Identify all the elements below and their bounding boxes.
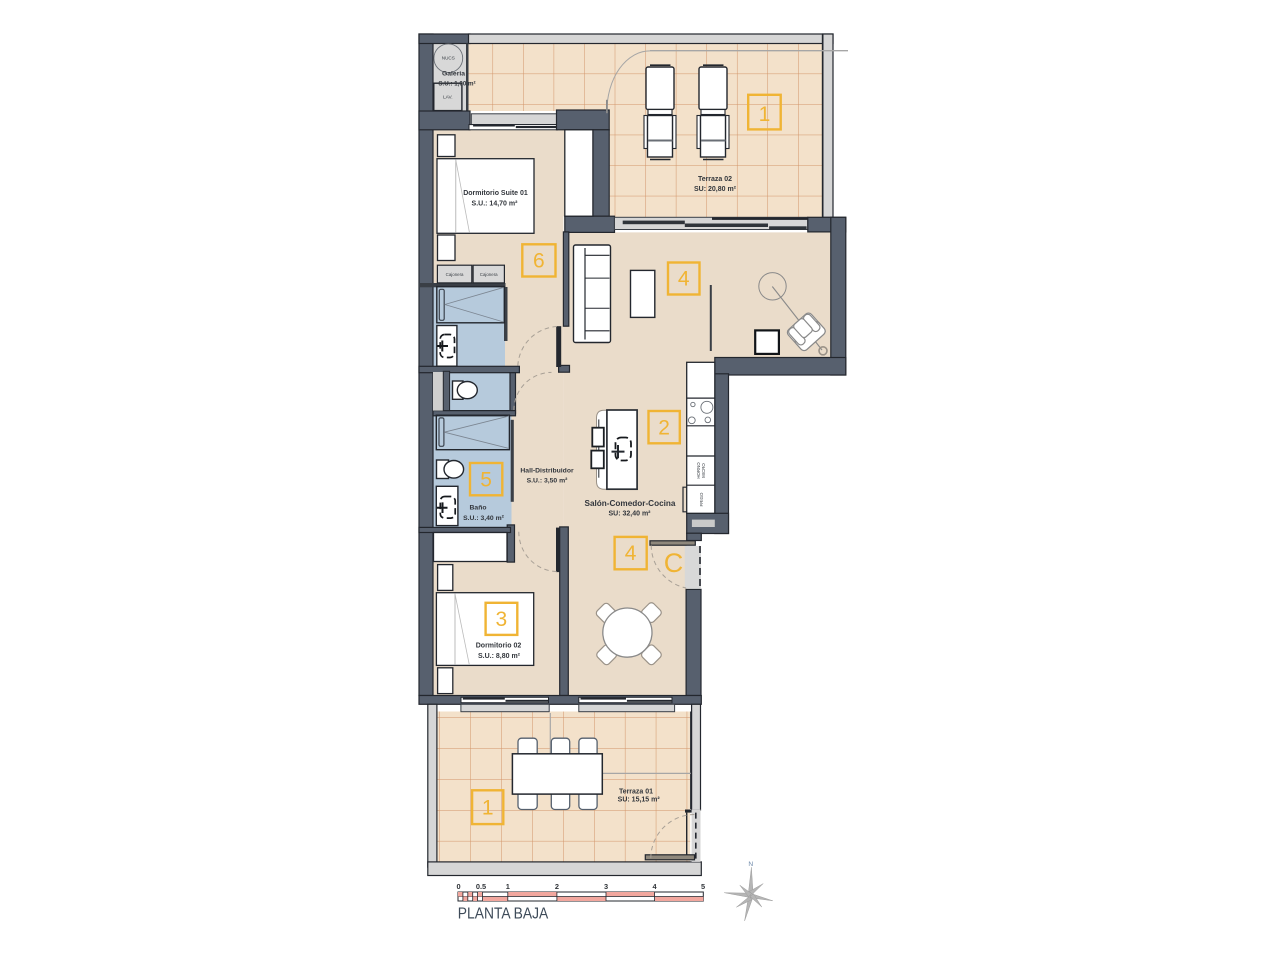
svg-text:Dormitorio Suite 01: Dormitorio Suite 01 (463, 190, 528, 197)
svg-text:3: 3 (496, 608, 508, 631)
svg-text:1: 1 (482, 797, 494, 820)
svg-text:Dormitorio 02: Dormitorio 02 (476, 643, 522, 650)
svg-text:C: C (664, 548, 684, 578)
svg-text:HORNOMICRO: HORNOMICRO (696, 462, 706, 479)
svg-text:6: 6 (533, 250, 545, 273)
svg-text:4: 4 (625, 542, 637, 565)
svg-text:SU: 15,15 m²: SU: 15,15 m² (618, 797, 661, 804)
svg-text:5: 5 (701, 882, 705, 891)
svg-text:SU: 32,40 m²: SU: 32,40 m² (608, 511, 651, 518)
svg-text:S.U.: 1,00 m²: S.U.: 1,00 m² (438, 81, 475, 88)
svg-text:Cajonera: Cajonera (480, 272, 498, 277)
svg-text:N: N (748, 861, 753, 868)
svg-text:NUCS: NUCS (442, 56, 455, 61)
svg-text:S.U.: 3,50 m²: S.U.: 3,50 m² (527, 478, 569, 485)
svg-text:2: 2 (658, 416, 670, 439)
svg-text:1: 1 (759, 103, 771, 126)
svg-text:4: 4 (678, 268, 690, 291)
svg-text:PLANTA BAJA: PLANTA BAJA (458, 906, 549, 923)
svg-text:S.U.: 8,80 m²: S.U.: 8,80 m² (478, 653, 521, 660)
svg-text:Baño: Baño (470, 505, 487, 512)
svg-text:SU: 20,80 m²: SU: 20,80 m² (694, 186, 737, 193)
svg-text:Galeria: Galeria (442, 71, 465, 78)
svg-text:Salón-Comedor-Cocina: Salón-Comedor-Cocina (585, 499, 676, 508)
svg-text:0: 0 (457, 882, 461, 891)
svg-text:S.U.: 14,70 m²: S.U.: 14,70 m² (472, 201, 519, 208)
svg-text:Terraza 02: Terraza 02 (698, 176, 732, 183)
svg-text:Terraza 01: Terraza 01 (619, 789, 653, 796)
svg-text:Cajonera: Cajonera (446, 272, 464, 277)
svg-text:FRIGO: FRIGO (699, 492, 704, 506)
svg-text:S.U.: 3,40 m²: S.U.: 3,40 m² (463, 515, 505, 522)
svg-text:2: 2 (555, 882, 559, 891)
svg-text:1: 1 (506, 882, 510, 891)
svg-text:0.5: 0.5 (476, 882, 486, 891)
svg-text:Hall-Distribuidor: Hall-Distribuidor (520, 468, 574, 475)
svg-text:LAV.: LAV. (443, 94, 453, 100)
svg-text:3: 3 (604, 882, 608, 891)
svg-text:5: 5 (480, 468, 492, 491)
